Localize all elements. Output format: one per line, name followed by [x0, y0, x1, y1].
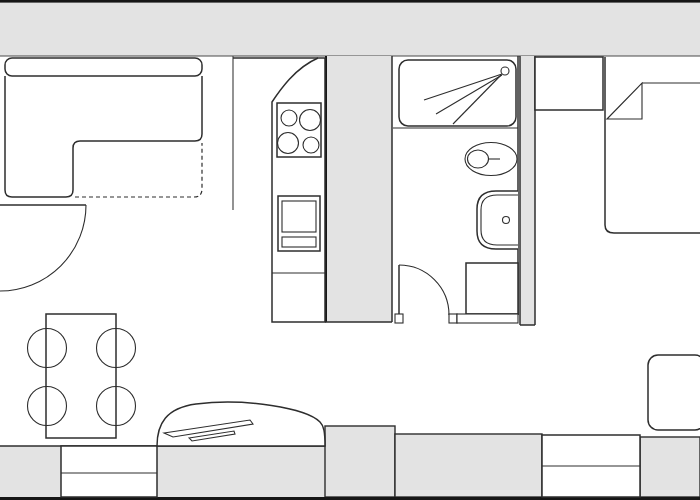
toilet — [465, 143, 517, 176]
kitchen-island-curved — [157, 402, 325, 446]
blanket-fold-corner — [607, 83, 642, 119]
corner-sofa — [5, 58, 202, 197]
washing-machine — [466, 263, 518, 314]
dining-table — [46, 314, 116, 438]
floorplan-drawing — [0, 0, 700, 500]
bed-with-folded-blanket — [605, 57, 700, 233]
bottom-left-window — [61, 446, 157, 497]
wash-basin — [477, 191, 518, 249]
floorplan — [0, 0, 700, 500]
top-wall-band — [0, 0, 700, 56]
oven — [278, 196, 320, 251]
shower — [393, 60, 518, 128]
sofa-bed-extension-dashed — [75, 143, 202, 197]
kitchen-counter — [233, 58, 325, 322]
bottom-right-window — [542, 435, 640, 497]
bathroom-bottom-wall — [457, 314, 518, 323]
bathroom-bedroom-partition — [520, 56, 535, 325]
wardrobe — [535, 57, 603, 110]
cooktop-four-burners — [277, 103, 321, 157]
dining-chairs — [28, 329, 136, 426]
armchair — [648, 355, 700, 430]
kitchen-bathroom-partition — [325, 56, 392, 322]
bathroom — [393, 56, 518, 323]
entry-door — [0, 205, 86, 291]
